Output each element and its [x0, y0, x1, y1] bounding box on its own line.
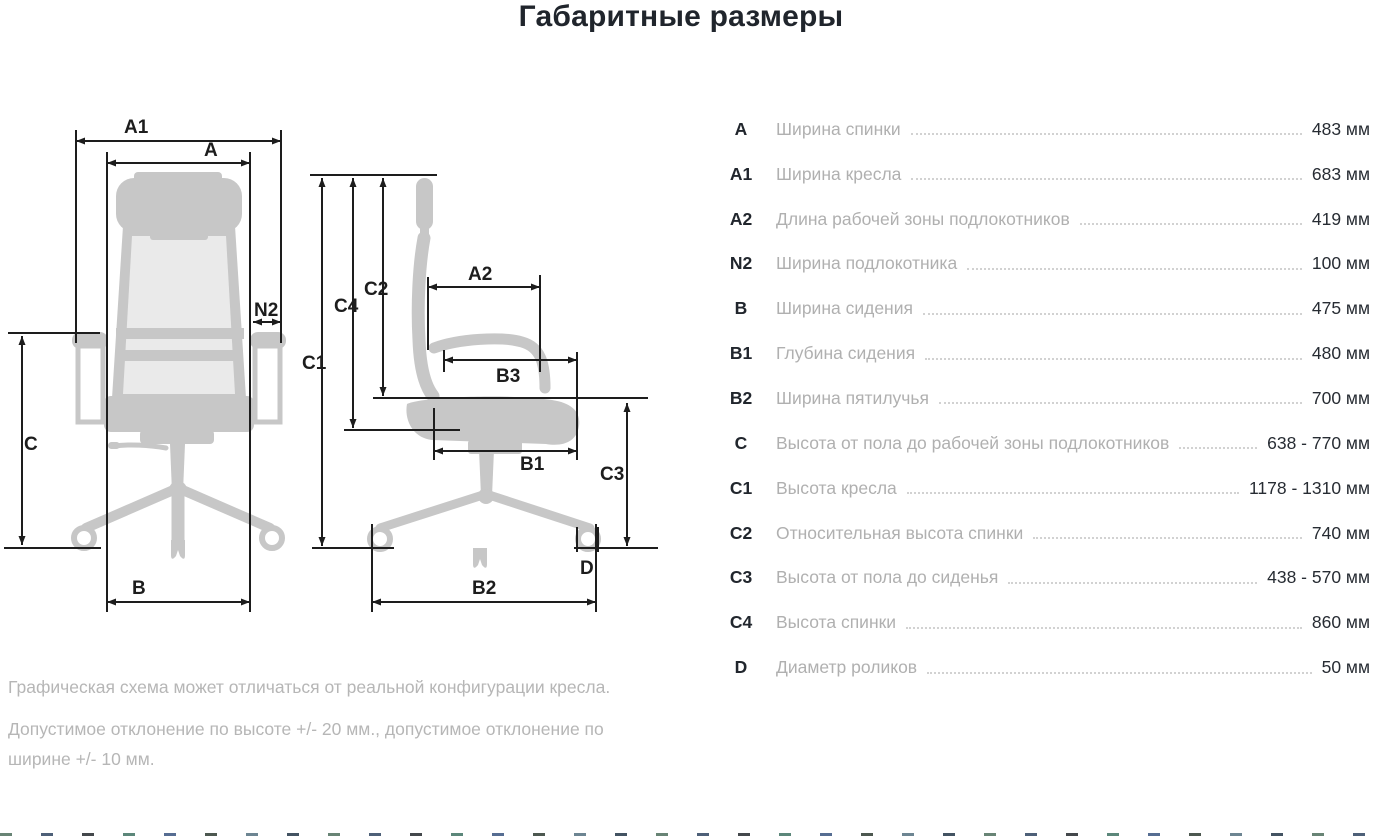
- armrest-post-right: [255, 346, 280, 422]
- dim-code: A: [722, 119, 760, 140]
- page-title: Габаритные размеры: [0, 0, 1362, 34]
- dotted-leader: [911, 178, 1301, 180]
- table-row: C4 Высота спинки 860 мм: [722, 600, 1370, 645]
- table-row: B Ширина сидения 475 мм: [722, 286, 1370, 331]
- note-tolerance: Допустимое отклонение по высоте +/- 20 м…: [8, 714, 640, 774]
- footnotes: Графическая схема может отличаться от ре…: [8, 672, 640, 774]
- dim-code: A1: [722, 164, 760, 185]
- dim-value: 683 мм: [1312, 164, 1370, 185]
- dim-label: Ширина кресла: [776, 164, 901, 185]
- dim-code: B2: [722, 388, 760, 409]
- dim-label-C1: C1: [302, 353, 327, 374]
- table-row: C2 Относительная высота спинки 740 мм: [722, 511, 1370, 556]
- dim-label-C4: C4: [334, 296, 359, 317]
- dotted-leader: [939, 402, 1302, 404]
- dim-code: B: [722, 298, 760, 319]
- adjust-lever-rod: [114, 445, 166, 448]
- dim-label-N2: N2: [254, 300, 278, 321]
- seat: [104, 396, 254, 432]
- dim-label: Ширина спинки: [776, 119, 901, 140]
- dim-label-B: B: [132, 578, 146, 599]
- side-dimension-C2: C2: [364, 178, 388, 396]
- dim-label-C3: C3: [600, 464, 624, 485]
- dim-value: 638 - 770 мм: [1267, 433, 1370, 454]
- dim-value: 50 мм: [1322, 657, 1370, 678]
- dim-label: Относительная высота спинки: [776, 523, 1023, 544]
- dimensions-table: A Ширина спинки 483 мм A1 Ширина кресла …: [722, 107, 1370, 690]
- base-leg: [380, 494, 486, 528]
- dim-label: Высота от пола до сиденья: [776, 567, 998, 588]
- dim-label-C2: C2: [364, 279, 388, 300]
- dim-code: C1: [722, 478, 760, 499]
- seat-mechanism: [140, 430, 214, 444]
- dim-label-B2: B2: [472, 578, 496, 599]
- dim-code: C: [722, 433, 760, 454]
- dotted-leader: [1080, 223, 1302, 225]
- dim-label: Глубина сидения: [776, 343, 915, 364]
- dim-value: 740 мм: [1312, 523, 1370, 544]
- dim-label: Высота спинки: [776, 612, 896, 633]
- headrest: [416, 178, 433, 230]
- side-dimension-B2: B2: [372, 524, 596, 612]
- dim-label: Длина рабочей зоны подлокотников: [776, 209, 1070, 230]
- base-leg: [86, 488, 178, 528]
- table-row: B1 Глубина сидения 480 мм: [722, 331, 1370, 376]
- dim-value: 475 мм: [1312, 298, 1370, 319]
- caster-fork: [473, 548, 487, 568]
- dotted-leader: [1179, 447, 1257, 449]
- dotted-leader: [923, 313, 1302, 315]
- table-row: N2 Ширина подлокотника 100 мм: [722, 242, 1370, 287]
- dim-code: D: [722, 657, 760, 678]
- table-row: A1 Ширина кресла 683 мм: [722, 152, 1370, 197]
- side-chair-silhouette: [370, 178, 598, 568]
- dotted-leader: [907, 492, 1239, 494]
- table-row: C Высота от пола до рабочей зоны подлоко…: [722, 421, 1370, 466]
- dim-label: Высота от пола до рабочей зоны подлокотн…: [776, 433, 1169, 454]
- dotted-leader: [925, 358, 1302, 360]
- dim-label: Ширина подлокотника: [776, 253, 957, 274]
- caster-fork: [171, 540, 185, 559]
- front-dimension-B: B: [107, 578, 250, 602]
- dim-label: Ширина пятилучья: [776, 388, 929, 409]
- table-row: A2 Длина рабочей зоны подлокотников 419 …: [722, 197, 1370, 242]
- dim-value: 1178 - 1310 мм: [1249, 478, 1370, 499]
- dim-label-B1: B1: [520, 454, 545, 475]
- lumbar-band: [117, 350, 243, 361]
- table-row: D Диаметр роликов 50 мм: [722, 645, 1370, 690]
- dimensions-page: Габаритные размеры: [0, 0, 1392, 836]
- dim-code: C2: [722, 523, 760, 544]
- dotted-leader: [911, 133, 1302, 135]
- table-row: B2 Ширина пятилучья 700 мм: [722, 376, 1370, 421]
- caster: [262, 528, 282, 548]
- lumbar-band: [116, 328, 244, 339]
- chair-side-view-diagram: C1 C4 C2 A2 B3 B1 C3: [300, 150, 662, 620]
- dim-label-C: C: [24, 434, 38, 455]
- dotted-leader: [967, 268, 1302, 270]
- dim-code: A2: [722, 209, 760, 230]
- dim-label: Диаметр роликов: [776, 657, 917, 678]
- caster: [74, 528, 94, 548]
- dim-value: 480 мм: [1312, 343, 1370, 364]
- armrest-profile: [434, 339, 545, 388]
- side-dimension-C3: C3: [600, 403, 627, 546]
- armrest-post-left: [78, 346, 103, 422]
- headrest-mount: [150, 226, 208, 240]
- backrest-mesh: [123, 236, 235, 394]
- table-row: C1 Высота кресла 1178 - 1310 мм: [722, 466, 1370, 511]
- front-chair-silhouette: [72, 172, 286, 559]
- base-leg: [486, 494, 590, 528]
- dotted-leader: [1033, 537, 1302, 539]
- dim-value: 700 мм: [1312, 388, 1370, 409]
- note-schema-disclaimer: Графическая схема может отличаться от ре…: [8, 672, 640, 702]
- dim-label-A: A: [204, 140, 218, 161]
- dim-label: Ширина сидения: [776, 298, 913, 319]
- seat-profile: [406, 397, 579, 445]
- side-dimension-C1: C1: [302, 178, 327, 546]
- dotted-leader: [906, 627, 1302, 629]
- table-row: A Ширина спинки 483 мм: [722, 107, 1370, 152]
- front-dimension-N2: N2: [253, 300, 281, 322]
- dim-label-A2: A2: [468, 264, 492, 285]
- dim-code: C3: [722, 567, 760, 588]
- dim-value: 860 мм: [1312, 612, 1370, 633]
- dim-value: 100 мм: [1312, 253, 1370, 274]
- dim-label-A1: A1: [124, 117, 149, 138]
- table-row: C3 Высота от пола до сиденья 438 - 570 м…: [722, 555, 1370, 600]
- chair-front-view-diagram: A1 A N2 C B: [4, 100, 304, 620]
- dim-label-B3: B3: [496, 366, 520, 387]
- dim-value: 419 мм: [1312, 209, 1370, 230]
- dotted-leader: [1008, 582, 1257, 584]
- dim-label-D: D: [580, 558, 594, 579]
- dotted-leader: [927, 672, 1312, 674]
- dim-code: C4: [722, 612, 760, 633]
- dim-code: N2: [722, 253, 760, 274]
- backrest-profile: [418, 238, 433, 396]
- dim-code: B1: [722, 343, 760, 364]
- dim-label: Высота кресла: [776, 478, 897, 499]
- dim-value: 483 мм: [1312, 119, 1370, 140]
- side-dimension-C4: C4: [334, 178, 359, 428]
- base-leg: [178, 488, 270, 528]
- headrest: [116, 178, 242, 232]
- dim-value: 438 - 570 мм: [1267, 567, 1370, 588]
